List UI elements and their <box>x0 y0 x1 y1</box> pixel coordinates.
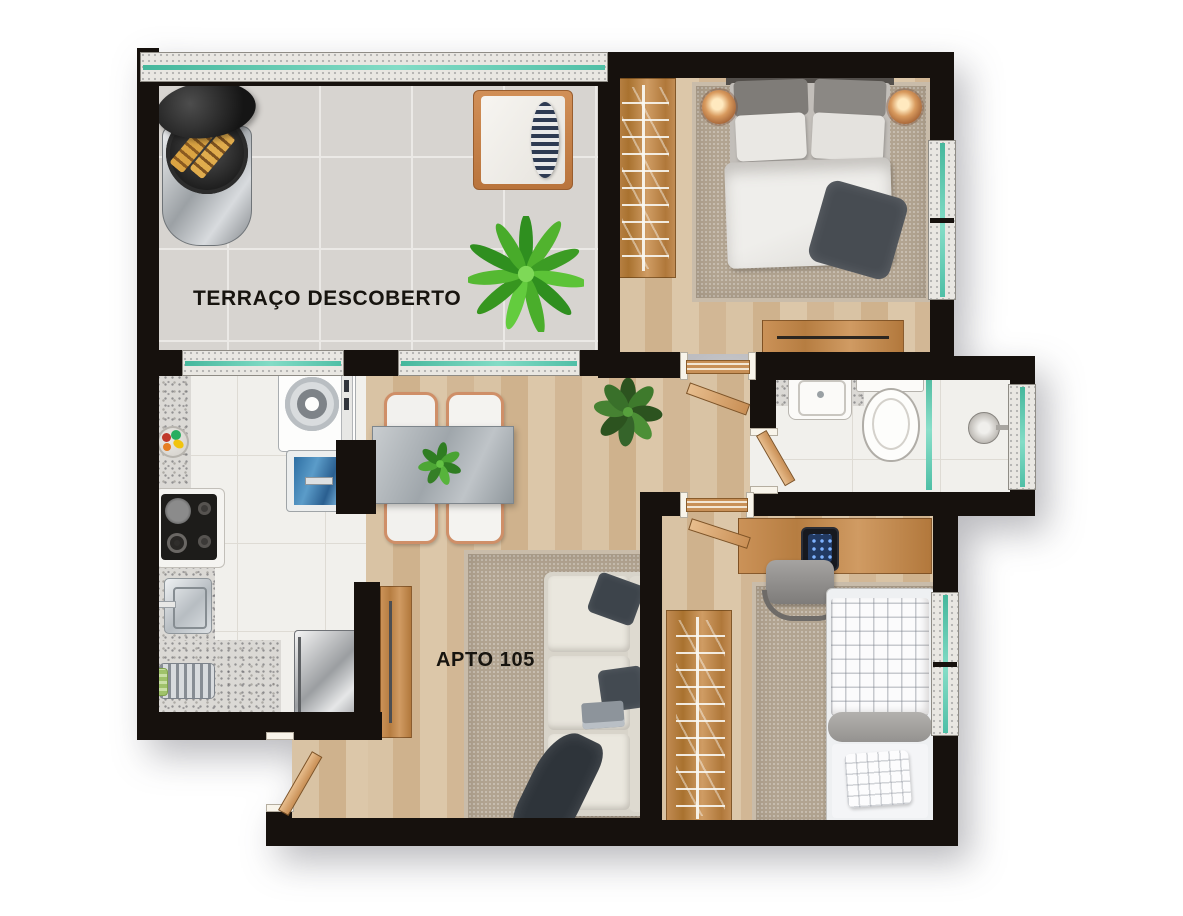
wardrobe-pole <box>696 617 699 818</box>
wall <box>933 500 958 592</box>
stove-burner <box>198 502 211 515</box>
terrace-plant-icon <box>468 216 584 332</box>
bed-pillow <box>735 112 807 162</box>
tank-faucet <box>305 477 333 485</box>
bedroom1-wardrobe <box>612 78 676 278</box>
wall <box>748 492 1035 516</box>
wall <box>640 820 958 846</box>
bathroom-window <box>1008 384 1036 490</box>
wall <box>266 818 662 846</box>
stove-burner <box>165 498 191 524</box>
bedroom2-window <box>931 592 959 736</box>
kitchen-sink <box>164 578 212 634</box>
shower-glass-partition <box>926 370 932 490</box>
bedroom1-window <box>928 140 956 300</box>
washer-drum <box>285 377 339 431</box>
sink-drain <box>817 391 824 398</box>
stove-burner <box>167 533 187 553</box>
wardrobe-pole <box>642 85 645 271</box>
daybed <box>473 90 573 190</box>
single-bed <box>826 588 936 828</box>
washer-control <box>344 398 349 410</box>
book <box>581 701 625 730</box>
bed-pillow <box>811 112 885 162</box>
fruit-bowl <box>157 426 189 458</box>
wardrobe-rails <box>676 620 725 817</box>
wall <box>598 52 954 78</box>
terrace-label: TERRAÇO DESCOBERTO <box>193 287 461 311</box>
tablet-screen <box>808 534 832 562</box>
bedside-lamp <box>888 90 922 124</box>
toilet-bowl <box>862 388 920 462</box>
unit-label: APTO 105 <box>436 649 535 672</box>
striped-pillow <box>531 102 559 178</box>
sink-basin <box>173 587 207 629</box>
door-threshold <box>686 498 748 512</box>
shower-head <box>968 412 1000 444</box>
floor-plan-canvas: TERRAÇO DESCOBERTO APTO 105 <box>0 0 1183 916</box>
dish-rack <box>160 664 214 698</box>
stove-burner <box>198 535 211 548</box>
wall <box>342 350 400 376</box>
tv-panel <box>380 586 412 738</box>
barbecue-grill <box>156 82 258 248</box>
table-plant-icon <box>416 440 464 488</box>
sink-bowl <box>798 380 846 416</box>
wall <box>930 52 954 152</box>
fruit <box>172 438 186 450</box>
wardrobe-rails <box>622 87 669 269</box>
washer-panel <box>341 375 353 445</box>
wall <box>150 350 184 376</box>
cooktop-stove <box>155 488 225 568</box>
terrace-parapet-window <box>140 52 608 86</box>
sink-faucet <box>158 601 176 608</box>
door-threshold <box>686 360 750 374</box>
fridge-handle <box>298 637 301 717</box>
plaid-duvet <box>831 598 929 716</box>
wall <box>336 440 376 514</box>
tv-panel-handle <box>389 601 392 723</box>
washer-control <box>344 380 349 392</box>
kitchen-window <box>182 350 344 376</box>
terrace-sliding-door <box>398 350 580 376</box>
fruit <box>162 433 171 442</box>
wall <box>137 712 382 740</box>
wall <box>598 52 620 378</box>
door-jamb <box>266 732 294 740</box>
toilet-seat <box>872 398 910 450</box>
wall <box>578 350 620 376</box>
wall <box>137 48 159 740</box>
apartment-floor-plan: TERRAÇO DESCOBERTO APTO 105 <box>0 0 1183 916</box>
bedside-lamp <box>702 90 736 124</box>
bedroom2-wardrobe <box>666 610 732 826</box>
double-bed <box>724 72 896 268</box>
bedroom1-dresser <box>762 320 904 356</box>
bed-pillow <box>813 79 886 117</box>
wall <box>354 582 380 740</box>
door-jamb <box>750 486 778 494</box>
bed-pillow <box>844 750 912 808</box>
wall <box>640 500 662 846</box>
fruit <box>163 443 171 451</box>
wall <box>750 356 1035 380</box>
hallway-plant-icon <box>592 376 664 448</box>
dresser-handle <box>777 336 889 339</box>
folded-blanket <box>828 712 932 742</box>
bed-pillow <box>733 79 808 118</box>
